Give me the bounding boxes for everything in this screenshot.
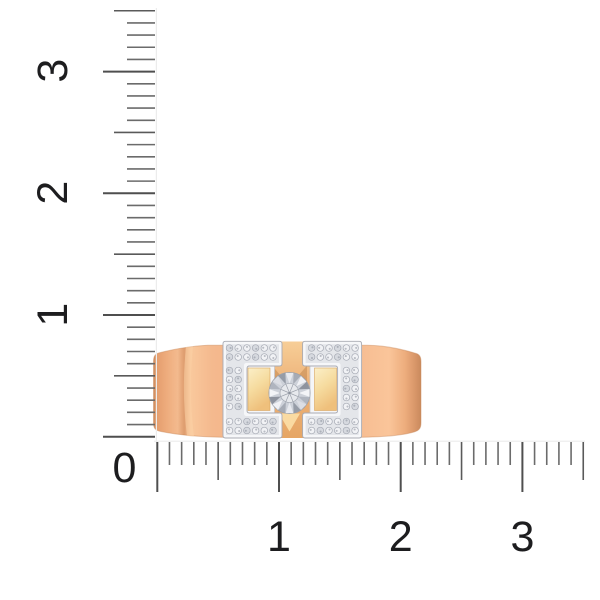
pave-stone (343, 345, 350, 352)
pave-stone (252, 354, 259, 361)
pave-stone-facet (353, 369, 355, 371)
horizontal-ruler-label-2: 2 (389, 513, 413, 561)
pave-stone-facet (346, 430, 348, 432)
pave-stone-facet (263, 431, 265, 433)
pave-stone (235, 427, 242, 434)
pave-stone (334, 418, 341, 425)
pave-stone-facet (353, 421, 355, 423)
pillar-right (315, 368, 337, 411)
pave-stone (261, 427, 268, 434)
pave-stone-facet (237, 419, 239, 421)
pave-stone-facet (328, 428, 330, 430)
pave-stone (317, 427, 324, 434)
pave-stone-facet (264, 420, 266, 422)
vertical-ruler (103, 8, 156, 443)
pave-stone (270, 418, 277, 425)
pave-stone (352, 394, 359, 401)
pave-stone-facet (311, 357, 313, 359)
pave-stone (226, 394, 233, 401)
pave-stone (343, 394, 350, 401)
pave-stone (343, 376, 350, 383)
pave-stone (226, 376, 233, 383)
pave-stone (317, 418, 324, 425)
pave-stone-facet (355, 388, 357, 390)
pave-stone-facet (254, 420, 256, 422)
pave-stone (352, 385, 359, 392)
pave-stone-facet (271, 429, 273, 431)
horizontal-ruler (154, 441, 585, 492)
pave-stone (226, 367, 233, 374)
vertical-ruler-label-3: 3 (29, 59, 77, 83)
pave-stone-facet (353, 405, 355, 407)
pave-stone (244, 354, 251, 361)
pillar-left (248, 368, 270, 411)
pave-stone-facet (264, 355, 266, 357)
pave-stone (352, 354, 359, 361)
pave-stone-facet (354, 357, 356, 359)
pave-stone (352, 403, 359, 410)
pave-stone-facet (237, 398, 239, 400)
pave-stone (334, 345, 341, 352)
pave-stone-facet (262, 347, 264, 349)
pave-stone-facet (345, 398, 347, 400)
pave-stone (226, 385, 233, 392)
pave-stone-facet (346, 419, 348, 421)
pave-stone-facet (245, 430, 247, 432)
pave-stone (308, 345, 315, 352)
pave-stone (244, 345, 251, 352)
pave-stone-facet (228, 428, 230, 430)
horizontal-ruler-label-1: 1 (267, 513, 291, 561)
pave-stone-facet (228, 357, 230, 359)
pave-stone (326, 345, 333, 352)
pave-stone-facet (228, 379, 230, 381)
pave-stone (235, 354, 242, 361)
pave-stone-facet (310, 421, 312, 423)
pave-stone-facet (329, 348, 331, 350)
pave-stone-facet (273, 346, 275, 348)
pave-stone (334, 427, 341, 434)
pave-stone (270, 354, 277, 361)
pave-stone (235, 394, 242, 401)
pave-stone-facet (320, 420, 322, 422)
pave-stone-facet (255, 348, 257, 350)
ruler-labels: 3 2 1 0 1 2 3 (29, 59, 534, 561)
pave-stone-facet (272, 421, 274, 423)
pave-stone (334, 354, 341, 361)
pave-stone (252, 427, 259, 434)
pave-stone (352, 367, 359, 374)
pave-stone (226, 418, 233, 425)
product-photo-canvas: 3 2 1 0 1 2 3 (0, 0, 600, 600)
ring-photo (154, 341, 422, 438)
pave-stone-facet (320, 355, 322, 357)
pave-stone (308, 427, 315, 434)
pave-stone-facet (354, 428, 356, 430)
pave-stone-facet (254, 356, 256, 358)
pave-stone-facet (236, 387, 238, 389)
pave-stone-facet (237, 355, 239, 357)
pave-stone (352, 427, 359, 434)
pave-stone (352, 418, 359, 425)
center-diamond (269, 373, 310, 414)
pave-stone-facet (336, 430, 338, 432)
pave-stone-facet (355, 347, 357, 349)
pave-stone-facet (228, 405, 230, 407)
pave-stone (261, 345, 268, 352)
pave-stone (343, 403, 350, 410)
pave-stone (308, 354, 315, 361)
pave-stone-facet (345, 348, 347, 350)
pave-stone-facet (238, 369, 240, 371)
diamond-culet (288, 392, 290, 394)
pave-stone-facet (355, 396, 357, 398)
pave-stone-facet (338, 356, 340, 358)
pave-stone-facet (227, 369, 229, 371)
pave-stone-facet (247, 356, 249, 358)
pave-stone-facet (344, 388, 346, 390)
pave-stone (226, 354, 233, 361)
pave-stone (226, 427, 233, 434)
pave-stone-facet (229, 388, 231, 390)
pave-stone-facet (272, 357, 274, 359)
pave-stone-facet (327, 356, 329, 358)
pave-stone-facet (236, 348, 238, 350)
pave-stone (261, 354, 268, 361)
pave-stone-facet (229, 396, 231, 398)
pave-stone-facet (353, 379, 355, 381)
pave-stone-facet (345, 355, 347, 357)
pave-stone (226, 403, 233, 410)
pave-stone (317, 345, 324, 352)
pave-stone-facet (246, 346, 248, 348)
pave-stone-facet (230, 347, 232, 349)
pave-stone (235, 367, 242, 374)
pave-stone (235, 345, 242, 352)
pave-stone-facet (238, 430, 240, 432)
pave-stone-facet (310, 429, 312, 431)
pave-stone (343, 385, 350, 392)
pave-stone (317, 354, 324, 361)
origin-label-0: 0 (113, 444, 137, 492)
pave-stone (226, 345, 233, 352)
pave-stone-facet (320, 431, 322, 433)
pave-stone (252, 345, 259, 352)
pave-stone (270, 345, 277, 352)
pave-stone-facet (346, 406, 348, 408)
vertical-ruler-label-2: 2 (29, 181, 77, 205)
pave-stone (252, 418, 259, 425)
pave-stone (244, 418, 251, 425)
horizontal-ruler-label-3: 3 (510, 513, 534, 561)
pave-stone (235, 385, 242, 392)
pave-stone (270, 427, 277, 434)
pave-stone-facet (318, 347, 320, 349)
pave-stone-facet (228, 421, 230, 423)
pave-stone (343, 427, 350, 434)
pave-stone (343, 418, 350, 425)
pave-stone-facet (255, 429, 257, 431)
vertical-ruler-label-1: 1 (29, 303, 77, 327)
pave-stone-facet (327, 420, 329, 422)
pave-stone-facet (345, 377, 347, 379)
pave-stone (308, 418, 315, 425)
pave-stone (235, 403, 242, 410)
pave-stone-facet (238, 406, 240, 408)
pave-stone (261, 418, 268, 425)
pave-stone (235, 376, 242, 383)
pave-stone (326, 427, 333, 434)
pave-stone (343, 367, 350, 374)
pave-stone (326, 354, 333, 361)
pave-stone (326, 418, 333, 425)
pave-stone-facet (237, 377, 239, 379)
pave-stone (352, 376, 359, 383)
pave-stone-facet (246, 421, 248, 423)
pave-stone (235, 418, 242, 425)
pave-stone-facet (346, 369, 348, 371)
pave-stone-facet (337, 346, 339, 348)
pave-stone-facet (337, 421, 339, 423)
pave-stone (343, 354, 350, 361)
pave-stone (352, 345, 359, 352)
pave-stone-facet (311, 346, 313, 348)
pave-stone (244, 427, 251, 434)
